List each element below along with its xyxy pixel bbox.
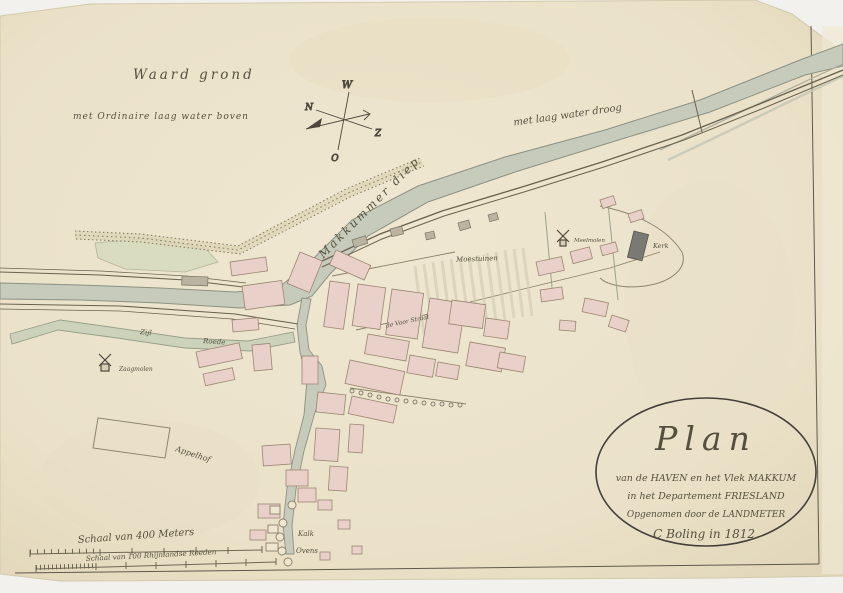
tree-dot (368, 393, 372, 397)
kiln (284, 558, 292, 566)
shed (182, 276, 208, 286)
kiln (278, 547, 286, 555)
building (559, 320, 576, 331)
cartouche-line2: van de HAVEN en het Vlek MAKKUM (616, 473, 797, 484)
building (449, 300, 486, 328)
map-canvas: W N O Z Waard grond met Ordinaire laag w… (0, 0, 843, 593)
building (386, 289, 424, 339)
cartouche-title: Plan (654, 419, 757, 458)
building (298, 488, 316, 502)
label-ovens: Ovens (296, 547, 318, 555)
shed (425, 231, 435, 240)
compass-label-o: O (331, 154, 339, 164)
label-waard-grond: Waard grond (133, 67, 255, 83)
right-margin (822, 26, 843, 574)
cartouche-line5: C Boling in 1812. (653, 527, 759, 541)
building (483, 318, 509, 339)
kiln-shed (266, 543, 278, 551)
compass-label-n: N (304, 103, 314, 113)
label-kerk: Kerk (652, 242, 669, 250)
label-roede: Roede (202, 337, 226, 347)
tree-dot (395, 398, 399, 402)
building (286, 470, 308, 486)
tree-dot (404, 399, 408, 403)
building (252, 343, 272, 370)
building (316, 392, 346, 415)
tree-dot (431, 402, 435, 406)
paper-stain (625, 180, 795, 440)
label-meelmolen: Meelmolen (573, 238, 605, 244)
windmill-base (560, 240, 566, 246)
building (302, 356, 318, 384)
tree-dot (440, 402, 444, 406)
building (320, 552, 330, 560)
building (540, 287, 563, 302)
building (262, 444, 291, 466)
kiln-shed (270, 506, 280, 514)
tree-dot (422, 401, 426, 405)
building (352, 546, 362, 554)
label-zaagmolen: Zaagmolen (118, 366, 153, 373)
cartouche-line3: in het Departement FRIESLAND (627, 491, 785, 502)
scanned-map-page: W N O Z Waard grond met Ordinaire laag w… (0, 0, 843, 593)
windmill-base (101, 364, 109, 371)
compass-label-z: Z (374, 129, 382, 139)
paper-stain (40, 420, 260, 540)
kiln (279, 519, 287, 527)
kiln (288, 501, 296, 509)
compass-label-w: W (342, 80, 353, 91)
building (318, 500, 332, 510)
tree-dot (359, 391, 363, 395)
building (352, 284, 386, 329)
tree-dot (377, 395, 381, 399)
building (338, 520, 350, 529)
label-zijl: Zijl (139, 328, 152, 337)
tree-dot (413, 400, 417, 404)
tree-dot (449, 403, 453, 407)
building (232, 318, 259, 332)
label-kalk: Kalk (297, 530, 314, 538)
building (328, 466, 348, 491)
paper-stain (290, 18, 570, 102)
building (314, 428, 340, 462)
kiln-shed (268, 525, 278, 533)
building (348, 424, 364, 453)
label-moestuinen: Moestuinen (455, 254, 499, 264)
label-laag-water-boven: met Ordinaire laag water boven (73, 112, 249, 122)
building (250, 530, 266, 540)
cartouche-line4: Opgenomen door de LANDMETER (627, 510, 786, 520)
tree-dot (458, 403, 462, 407)
tree-dot (386, 397, 390, 401)
kiln (276, 533, 284, 541)
building (242, 280, 285, 309)
tree-dot (350, 389, 354, 393)
